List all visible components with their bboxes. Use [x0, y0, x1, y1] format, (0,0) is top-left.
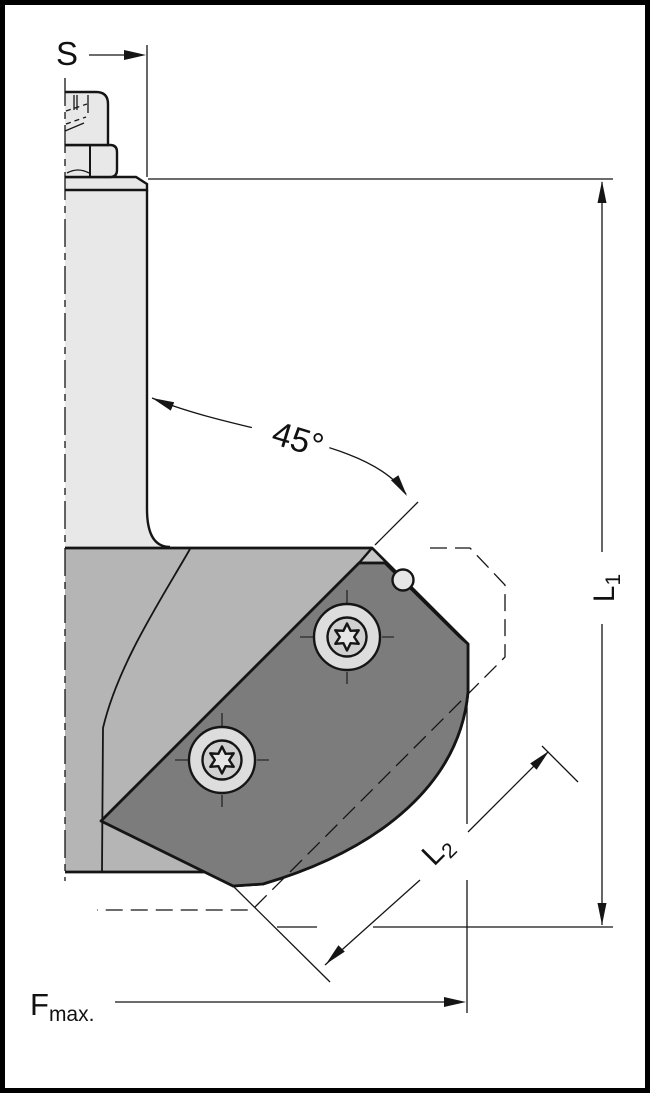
tool-shank — [65, 190, 170, 547]
angle-reference-tick — [375, 502, 418, 545]
washer-flange — [65, 177, 147, 190]
pin-hole — [393, 570, 414, 591]
fmax-arrowhead — [444, 997, 466, 1007]
dim-s-label: S — [56, 35, 78, 72]
dim-l1-label: L1 — [588, 574, 625, 602]
dim-fmax-label: Fmax. — [30, 987, 94, 1026]
hex-nut — [65, 145, 117, 177]
l1-arrowhead-down — [598, 903, 607, 925]
dim-chamfer-angle: 45° — [152, 398, 418, 545]
washer-fill — [65, 177, 147, 190]
dim-s-arrowhead — [124, 50, 146, 60]
screw-head-block — [65, 92, 108, 145]
cutter-technical-drawing: S 45° L1 L2 Fmax. — [0, 0, 650, 1093]
l1-arrowhead-up — [598, 181, 607, 203]
angle-arrowhead-right — [391, 475, 407, 496]
drawing-canvas: S 45° L1 L2 Fmax. — [0, 0, 650, 1093]
l2-arrowhead-lower — [326, 945, 345, 964]
angle-arrowhead-left — [152, 398, 174, 411]
dim-l2-label: L2 — [416, 829, 462, 875]
dim-angle-label: 45° — [268, 414, 328, 465]
shank-edge — [147, 190, 170, 547]
shank-fill — [65, 190, 170, 547]
block-fill — [65, 92, 108, 145]
l2-extension-lower — [231, 884, 330, 982]
l2-extension-upper — [542, 746, 578, 782]
